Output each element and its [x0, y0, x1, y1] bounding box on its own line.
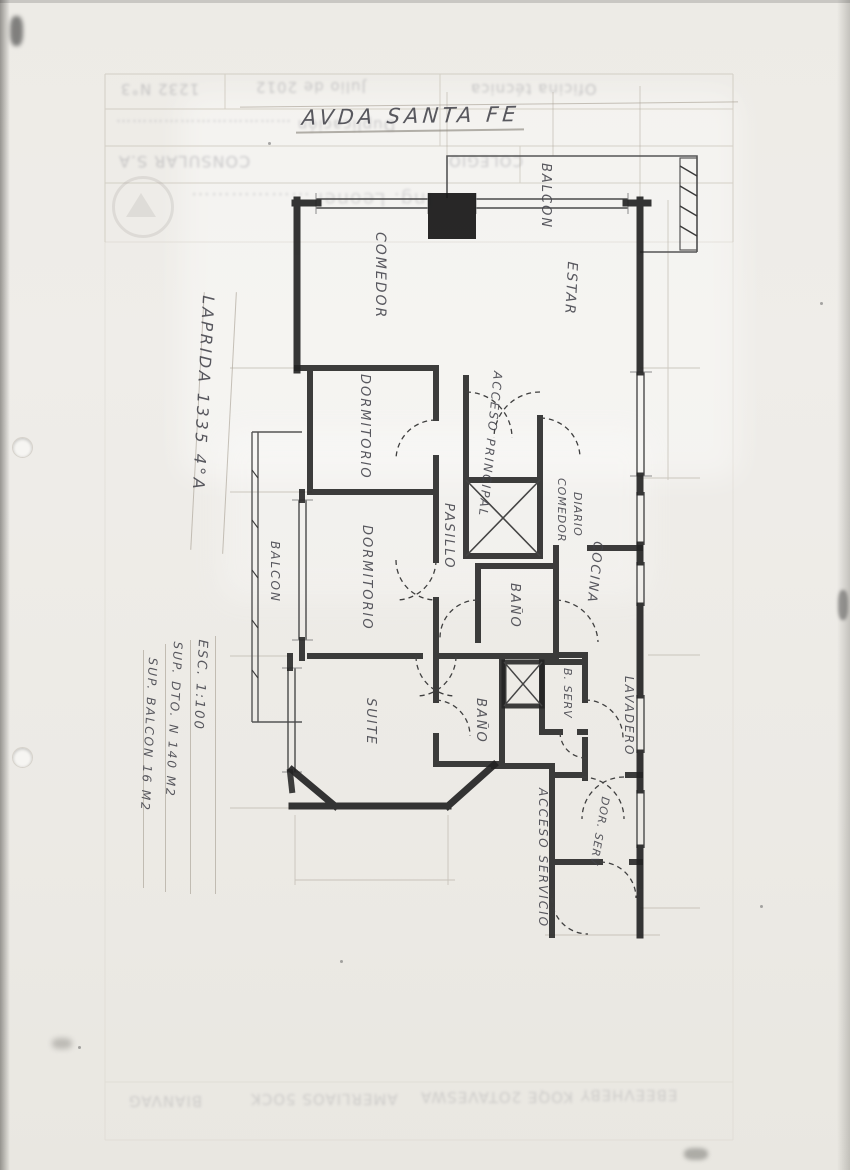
scan-speck	[760, 905, 763, 908]
scan-smudge	[838, 590, 848, 620]
ghost-bottom-text: AMERLIAOS 5OCK	[250, 1090, 398, 1108]
scan-speck	[268, 142, 271, 145]
scan-speck	[340, 960, 343, 963]
hole-punch	[12, 747, 33, 768]
room-label-bano-servicio: B. SERV	[561, 668, 574, 719]
room-label-pasillo: PASILLO	[441, 503, 456, 570]
ghost-bottom-text: BIANVAG	[128, 1092, 202, 1110]
scan-speck	[820, 302, 823, 305]
ruled-line	[190, 640, 191, 894]
ghost-bottom-text: EBEEVHEBY	[580, 1086, 677, 1104]
room-label-bano-2: BAÑO	[473, 698, 488, 744]
room-label-acceso-servicio: ACCESO SERVICIO	[536, 788, 550, 928]
scan-edge-shadow-left	[0, 0, 10, 1170]
room-label-comedor-diario-1: COMEDOR	[555, 478, 568, 543]
scan-smudge	[684, 1148, 708, 1160]
floor-plan-drawing	[0, 0, 850, 1170]
room-label-balcon-top: BALCON	[538, 163, 553, 229]
scan-edge-shadow-top	[0, 0, 850, 3]
scanned-floor-plan-page: { "title": { "street": "AVDA SANTA FE" }…	[0, 0, 850, 1170]
room-label-dormitorio-2: DORMITORIO	[359, 525, 374, 631]
room-label-comedor: COMEDOR	[372, 232, 388, 319]
room-label-suite: SUITE	[363, 698, 378, 746]
scan-smudge	[10, 16, 23, 46]
room-label-bano-1: BAÑO	[507, 583, 522, 629]
ruled-line	[215, 636, 216, 894]
hole-punch	[12, 437, 33, 458]
scan-smudge	[52, 1038, 72, 1049]
room-label-dormitorio-1: DORMITORIO	[357, 374, 372, 480]
scan-speck	[78, 1046, 81, 1049]
room-label-estar: ESTAR	[561, 261, 580, 316]
ghost-bottom-text: KOQE 2OTAVESWA	[420, 1088, 573, 1106]
scan-edge-shadow-right	[837, 0, 850, 1170]
room-label-lavadero: LAVADERO	[622, 676, 636, 757]
room-label-comedor-diario-2: DIARIO	[571, 492, 584, 537]
room-label-balcon-left: BALCON	[268, 541, 282, 603]
